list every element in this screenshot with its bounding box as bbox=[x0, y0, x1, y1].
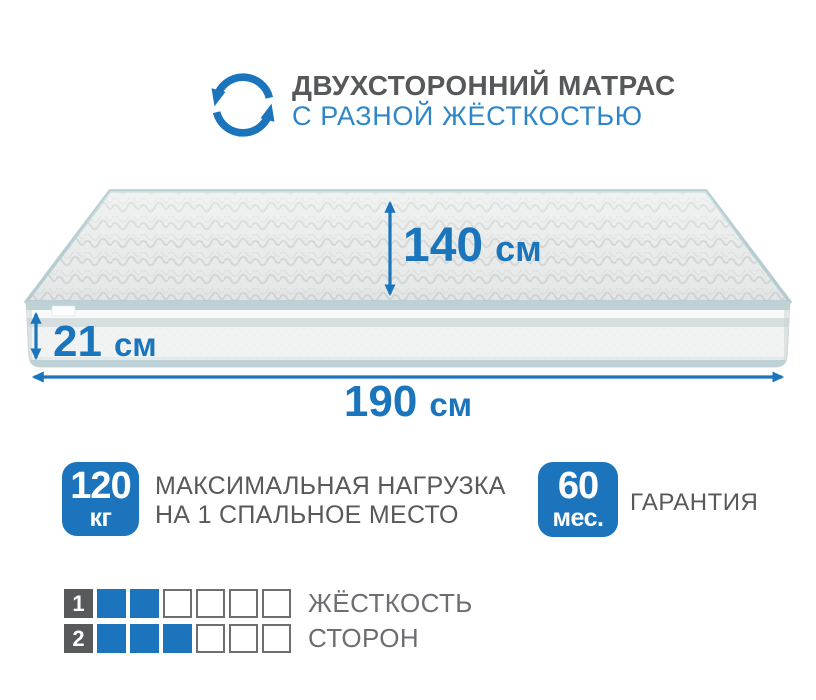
dimension-length-label: 190 см bbox=[318, 380, 498, 424]
firmness-cell-empty bbox=[262, 589, 291, 618]
firmness-cells-side-1 bbox=[97, 589, 291, 618]
firmness-row-1: 1 ЖЁСТКОСТЬ bbox=[64, 588, 473, 619]
firmness-cell-filled bbox=[130, 624, 159, 653]
firmness-text-2: СТОРОН bbox=[308, 623, 419, 654]
length-unit: см bbox=[429, 388, 472, 421]
warranty-badge: 60 мес. bbox=[538, 462, 618, 537]
firmness-cell-empty bbox=[229, 589, 258, 618]
max-load-unit: кг bbox=[90, 505, 112, 531]
height-value: 21 bbox=[53, 320, 102, 364]
firmness-cells-side-2 bbox=[97, 624, 291, 653]
max-load-line1: МАКСИМАЛЬНАЯ НАГРУЗКА bbox=[155, 472, 506, 501]
mattress-tag bbox=[52, 306, 75, 316]
page-subtitle: С РАЗНОЙ ЖЁСТКОСТЬЮ bbox=[292, 101, 643, 132]
infographic-canvas: ДВУХСТОРОННИЙ МАТРАС С РАЗНОЙ ЖЁСТКОСТЬЮ bbox=[0, 0, 816, 700]
firmness-cell-filled bbox=[130, 589, 159, 618]
firmness-cell-empty bbox=[196, 624, 225, 653]
dimension-width-label: 140 см bbox=[403, 222, 542, 270]
firmness-scale: 1 ЖЁСТКОСТЬ 2 СТОРОН bbox=[64, 588, 473, 654]
firmness-cell-empty bbox=[163, 589, 192, 618]
dimension-height-label: 21 см bbox=[53, 320, 157, 364]
firmness-cell-filled bbox=[97, 624, 126, 653]
firmness-cell-filled bbox=[97, 589, 126, 618]
length-value: 190 bbox=[344, 380, 417, 424]
firmness-row-2: 2 СТОРОН bbox=[64, 623, 473, 654]
firmness-cell-empty bbox=[229, 624, 258, 653]
warranty-unit: мес. bbox=[553, 505, 604, 531]
max-load-value: 120 bbox=[70, 467, 130, 505]
max-load-badge: 120 кг bbox=[62, 462, 139, 536]
side-2-label: 2 bbox=[64, 624, 93, 653]
firmness-text-1: ЖЁСТКОСТЬ bbox=[308, 588, 473, 619]
max-load-description: МАКСИМАЛЬНАЯ НАГРУЗКА НА 1 СПАЛЬНОЕ МЕСТ… bbox=[155, 472, 506, 530]
page-title: ДВУХСТОРОННИЙ МАТРАС bbox=[292, 70, 676, 102]
side-1-label: 1 bbox=[64, 589, 93, 618]
rotate-arrows-icon bbox=[203, 64, 283, 146]
firmness-cell-empty bbox=[196, 589, 225, 618]
width-value: 140 bbox=[403, 222, 483, 270]
warranty-label: ГАРАНТИЯ bbox=[630, 489, 758, 517]
firmness-cell-filled bbox=[163, 624, 192, 653]
firmness-cell-empty bbox=[262, 624, 291, 653]
max-load-line2: НА 1 СПАЛЬНОЕ МЕСТО bbox=[155, 501, 506, 530]
warranty-value: 60 bbox=[558, 467, 598, 505]
height-unit: см bbox=[114, 328, 157, 361]
width-unit: см bbox=[495, 231, 542, 267]
